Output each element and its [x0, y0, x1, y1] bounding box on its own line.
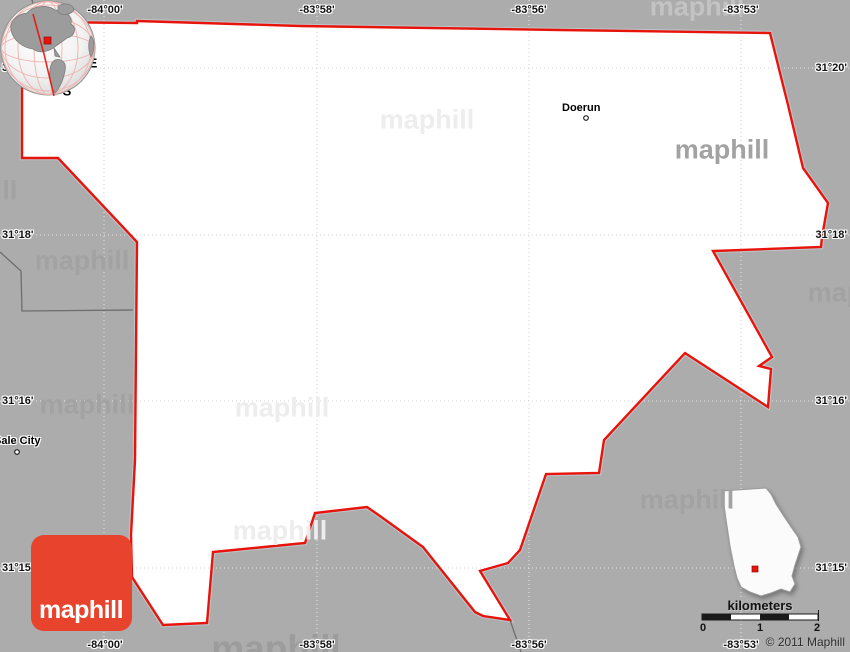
doerun-marker [584, 116, 589, 121]
coordinate-label-right-4: 31°15' [816, 562, 848, 574]
scale-bar-segment [702, 614, 731, 620]
map-canvas: maphill maphill maphill maphill maphill … [0, 0, 850, 652]
coordinate-label-bottom-1: -84°00' [87, 639, 122, 651]
coordinate-label-right-2: 31°18' [816, 229, 848, 241]
coordinate-label-bottom-3: -83°56' [511, 639, 546, 651]
coordinate-label-right-1: 31°20' [816, 62, 848, 74]
coordinate-label-left-2: 31°18' [2, 229, 34, 241]
locator-globe [0, 0, 96, 96]
coordinate-label-left-3: 31°16' [2, 395, 34, 407]
maphill-logo[interactable]: maphill [31, 535, 132, 631]
scale-unit-label: kilometers [727, 598, 792, 613]
coordinate-label-top-3: -83°56' [511, 4, 546, 16]
coordinate-label-left-4: 31°15' [2, 562, 34, 574]
coordinate-label-top-2: -83°58' [299, 4, 334, 16]
scale-tick-2: 2 [814, 622, 820, 634]
maphill-logo-text: maphill [39, 596, 123, 625]
city-label-sale-city: Sale City [0, 435, 40, 447]
scale-bar-segment [760, 614, 789, 620]
sale-city-marker [15, 450, 20, 455]
coordinate-label-bottom-2: -83°58' [299, 639, 334, 651]
coordinate-label-right-3: 31°16' [816, 395, 848, 407]
scale-tick-1: 1 [757, 622, 763, 634]
coordinate-label-bottom-4: -83°53' [723, 639, 758, 651]
scale-tick-0: 0 [700, 622, 706, 634]
inset-location-marker [752, 566, 758, 572]
globe-location-marker [44, 37, 51, 44]
city-label-doerun: Doerun [562, 102, 601, 114]
copyright-notice: © 2011 Maphill [766, 635, 845, 649]
coordinate-label-top-4: -83°53' [723, 4, 758, 16]
